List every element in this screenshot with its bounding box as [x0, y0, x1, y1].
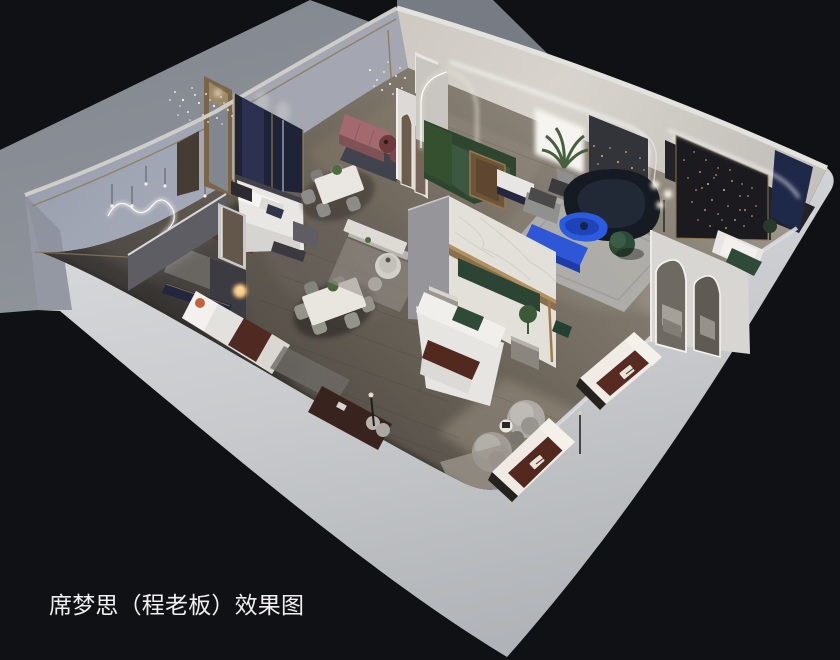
svg-text:席梦思（程老板）效果图: 席梦思（程老板）效果图 [49, 592, 304, 618]
